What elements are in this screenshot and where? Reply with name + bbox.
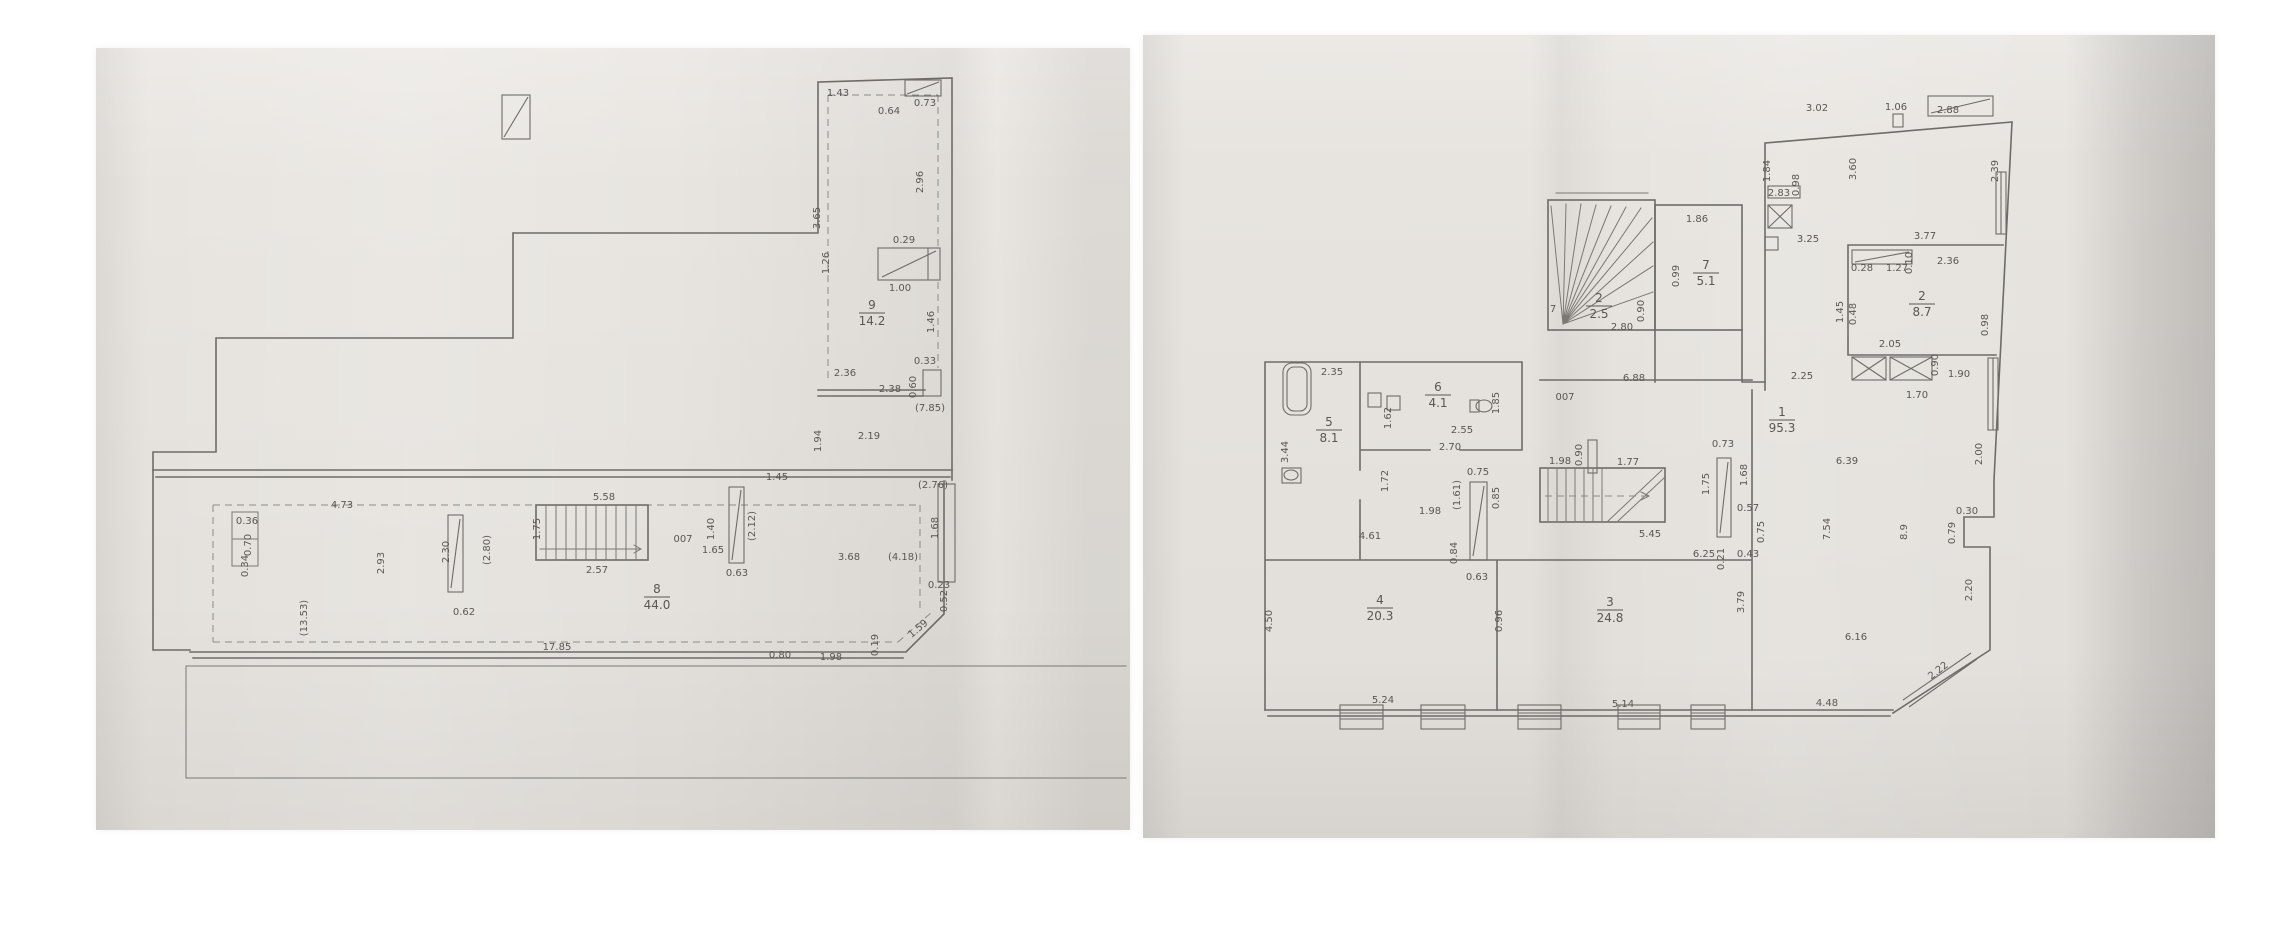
dimension-label: 0.57	[1737, 503, 1759, 514]
room-label: 14.2	[859, 314, 886, 328]
dimension-label: 0.30	[1956, 506, 1978, 517]
dimension-label: 2.19	[858, 431, 880, 442]
dimension-label: 1.75	[1701, 473, 1712, 495]
dimension-label: 1.62	[1383, 407, 1394, 429]
dimension-label: 007	[673, 534, 692, 545]
dimension-label: 3.77	[1914, 231, 1936, 242]
dimension-label: 0.99	[1671, 265, 1682, 287]
dimension-label: 6.88	[1623, 373, 1645, 384]
dimension-label: 1.98	[820, 652, 842, 663]
stairs-icon	[536, 505, 648, 560]
dimension-label: 2.25	[1791, 371, 1813, 382]
dimension-label: 0.70	[243, 534, 254, 556]
dimension-label: 0.21	[1716, 548, 1727, 570]
dimension-label: 2.05	[1879, 339, 1901, 350]
room-label: 4	[1376, 593, 1384, 607]
dimension-label: 1.77	[1617, 457, 1639, 468]
dimension-label: 1.90	[1948, 369, 1970, 380]
dimension-label: 2.35	[1321, 367, 1343, 378]
dimension-label: (2.80)	[482, 535, 493, 565]
dimension-label: 2.93	[376, 552, 387, 574]
dimension-label: 0.60	[908, 376, 919, 398]
dimension-label: 0.96	[1494, 610, 1505, 632]
dimension-label: 2.30	[441, 541, 452, 563]
dimension-label: 5.24	[1372, 695, 1394, 706]
dimension-label: 0.98	[1980, 314, 1991, 336]
dimension-label: (13.53)	[299, 600, 310, 637]
dimension-label: 1.00	[889, 283, 911, 294]
dimension-label: 2.00	[1974, 443, 1985, 465]
room-label: 4.1	[1428, 396, 1447, 410]
dimension-label: 0.28	[1851, 263, 1873, 274]
dimension-label: 0.33	[914, 356, 936, 367]
dimension-label: 6.39	[1836, 456, 1858, 467]
dimension-label: 1.68	[1739, 464, 1750, 486]
stairs-icon	[1540, 468, 1665, 522]
window-icons	[1340, 96, 2006, 729]
dimension-label: 4.50	[1264, 610, 1275, 632]
dimension-label: 3.79	[1736, 591, 1747, 613]
dimension-label: 0.73	[914, 98, 936, 109]
dimension-label: 3.44	[1280, 441, 1291, 463]
dimension-label: 1.86	[1686, 214, 1708, 225]
dimension-label: 0.36	[236, 516, 258, 527]
dimension-label: 2.80	[1611, 322, 1633, 333]
dimension-label: 2.70	[1439, 442, 1461, 453]
dimension-label: 0.80	[769, 650, 791, 661]
dimension-label: 5.14	[1612, 699, 1634, 710]
dimension-label: 1.46	[926, 311, 937, 333]
dimension-label: 5.58	[593, 492, 615, 503]
dimension-label: 0.63	[726, 568, 748, 579]
dimension-labels-layer: 1.430.640.733.652.961.260.291.001.460.33…	[236, 88, 950, 663]
dimension-label: 1.75	[532, 518, 543, 540]
dimension-label: 2.88	[1937, 105, 1959, 116]
dimension-label: 0.52	[939, 590, 950, 612]
dimension-label: 0.63	[1466, 572, 1488, 583]
dimension-label: 0.29	[893, 235, 915, 246]
dimension-label: 2.20	[1964, 579, 1975, 601]
dimension-label: 1.98	[1549, 456, 1571, 467]
dimension-label: 0.75	[1756, 521, 1767, 543]
dimension-label: 3.68	[838, 552, 860, 563]
dimension-label: (2.76)	[918, 480, 948, 491]
dimension-label: 1.72	[1380, 470, 1391, 492]
dimension-label: 0.34	[240, 555, 251, 577]
dimension-label: 0.43	[1737, 549, 1759, 560]
dimension-label: (2.12)	[747, 511, 758, 541]
dimension-label: 0.90	[1930, 354, 1941, 376]
dimension-label: 2.38	[879, 384, 901, 395]
dimension-label: 3.02	[1806, 103, 1828, 114]
dimension-label: 1.40	[706, 518, 717, 540]
dimension-label: 7	[1550, 304, 1556, 315]
dimension-label: 1.70	[1906, 390, 1928, 401]
room-label: 5.1	[1696, 274, 1715, 288]
dimension-label: 1.45	[1835, 301, 1846, 323]
floorplan-drawing-2: 73.021.062.881.843.602.392.830.983.253.7…	[1143, 35, 2215, 838]
dimension-label: 1.59	[906, 618, 930, 641]
dimension-label: 0.98	[1791, 174, 1802, 196]
dimension-label: 0.79	[1947, 522, 1958, 544]
dimension-label: 2.39	[1990, 160, 2001, 182]
room-label: 9	[868, 298, 876, 312]
dimension-label: 4.61	[1359, 531, 1381, 542]
room-label: 8.7	[1912, 305, 1931, 319]
dimension-label: 2.55	[1451, 425, 1473, 436]
walls	[153, 78, 1126, 778]
dimension-label: 1.43	[827, 88, 849, 99]
dimension-label: 3.65	[812, 207, 823, 229]
dimension-label: 0.10	[1904, 252, 1915, 274]
room-label: 3	[1606, 595, 1614, 609]
dimension-label: 2.36	[1937, 256, 1959, 267]
room-label: 1	[1778, 405, 1786, 419]
dimension-label: 0.84	[1449, 542, 1460, 564]
dimension-label: (7.85)	[915, 403, 945, 414]
dimension-label: (1.61)	[1452, 480, 1463, 510]
dimension-label: 1.68	[930, 517, 941, 539]
room-label: 24.8	[1597, 611, 1624, 625]
dimension-label: 5.45	[1639, 529, 1661, 540]
dimension-label: 4.48	[1816, 698, 1838, 709]
room-label: 8	[653, 582, 661, 596]
room-label: 2	[1595, 291, 1603, 305]
dimension-label: 0.90	[1574, 444, 1585, 466]
dimension-label: 3.60	[1848, 158, 1859, 180]
floorplan-drawing-1: 1.430.640.733.652.961.260.291.001.460.33…	[96, 48, 1130, 830]
dimension-label: 1.45	[766, 472, 788, 483]
dimension-label: (4.18)	[888, 552, 918, 563]
dimension-label: 6.16	[1845, 632, 1867, 643]
dimension-label: 0.73	[1712, 439, 1734, 450]
window-icons	[448, 80, 955, 592]
dimension-label: 0.62	[453, 607, 475, 618]
room-label: 5	[1325, 415, 1333, 429]
dimension-label: 1.65	[702, 545, 724, 556]
dimension-label: 2.96	[915, 171, 926, 193]
dimension-label: 007	[1555, 392, 1574, 403]
room-label: 6	[1434, 380, 1442, 394]
floorplan-photo-2: 73.021.062.881.843.602.392.830.983.253.7…	[1143, 35, 2215, 838]
dimension-label: 0.23	[928, 580, 950, 591]
dimension-label: 17.85	[543, 642, 572, 653]
dimension-label: 7.54	[1822, 518, 1833, 540]
dimension-label: 3.25	[1797, 234, 1819, 245]
dimension-label: 6.25	[1693, 549, 1715, 560]
floorplan-photo-1: 1.430.640.733.652.961.260.291.001.460.33…	[96, 48, 1130, 830]
dimension-label: 2.36	[834, 368, 856, 379]
dimension-label: 0.75	[1467, 467, 1489, 478]
dimension-label: 0.19	[870, 634, 881, 656]
dimension-label: 1.98	[1419, 506, 1441, 517]
dimension-label: 8.9	[1899, 524, 1910, 540]
room-label: 95.3	[1769, 421, 1796, 435]
dimension-label: 1.06	[1885, 102, 1907, 113]
room-label: 20.3	[1367, 609, 1394, 623]
dimension-label: 2.57	[586, 565, 608, 576]
dimension-label: 1.85	[1491, 392, 1502, 414]
room-label: 7	[1702, 258, 1710, 272]
dimension-label: 0.48	[1848, 303, 1859, 325]
dimension-label: 1.84	[1762, 160, 1773, 182]
room-label: 2.5	[1589, 307, 1608, 321]
room-label: 44.0	[644, 598, 671, 612]
room-label: 8.1	[1319, 431, 1338, 445]
room-labels-layer: 914.2844.0	[644, 298, 886, 612]
dimension-label: 4.73	[331, 500, 353, 511]
dimension-label: 1.94	[813, 430, 824, 452]
dimension-label: 0.85	[1491, 487, 1502, 509]
dimension-label: 0.90	[1636, 300, 1647, 322]
dimension-label: 2.83	[1768, 188, 1790, 199]
room-label: 2	[1918, 289, 1926, 303]
dimension-label: 0.64	[878, 106, 900, 117]
dimension-label: 1.26	[821, 252, 832, 274]
